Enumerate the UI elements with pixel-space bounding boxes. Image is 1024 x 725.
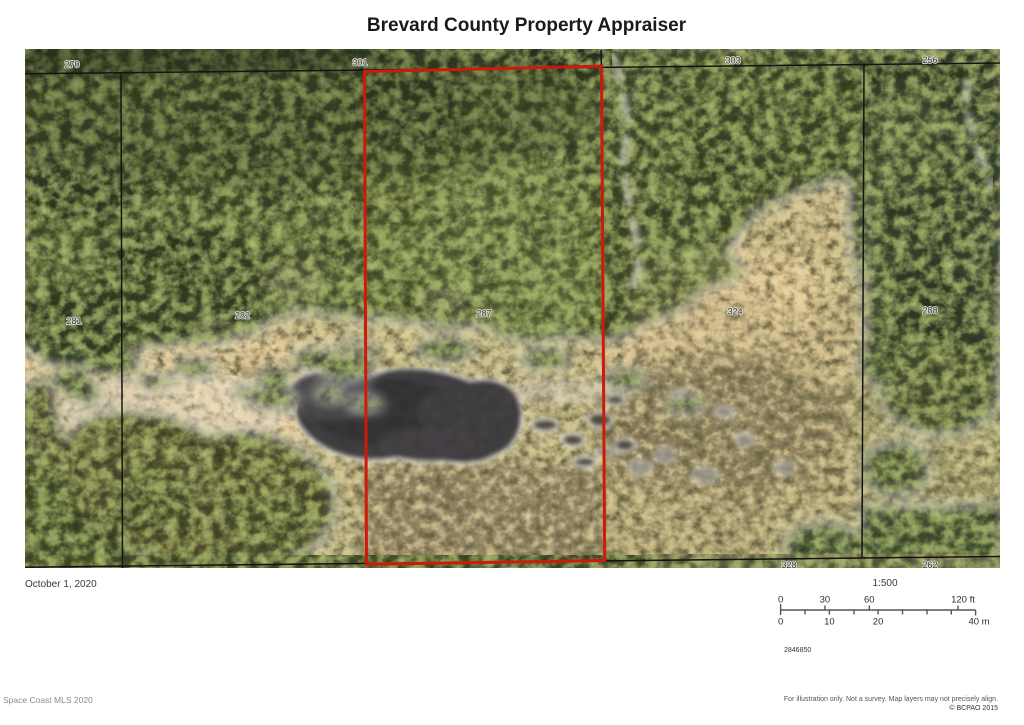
svg-text:256: 256: [922, 55, 937, 65]
svg-text:0: 0: [778, 595, 783, 606]
svg-text:262: 262: [922, 560, 937, 568]
svg-text:282: 282: [235, 311, 250, 321]
svg-text:301: 301: [352, 58, 367, 68]
svg-text:281: 281: [66, 316, 81, 326]
svg-text:328: 328: [781, 560, 796, 568]
svg-text:0: 0: [778, 617, 783, 628]
svg-text:287: 287: [476, 309, 491, 319]
svg-text:120 ft: 120 ft: [951, 595, 975, 606]
svg-text:270: 270: [64, 60, 79, 70]
svg-text:10: 10: [824, 617, 835, 628]
svg-text:20: 20: [873, 617, 884, 628]
svg-text:60: 60: [864, 595, 875, 606]
svg-text:40 m: 40 m: [968, 617, 989, 628]
svg-text:30: 30: [820, 595, 831, 606]
svg-text:288: 288: [922, 306, 937, 316]
svg-text:303: 303: [725, 56, 740, 66]
svg-text:324: 324: [727, 307, 742, 317]
